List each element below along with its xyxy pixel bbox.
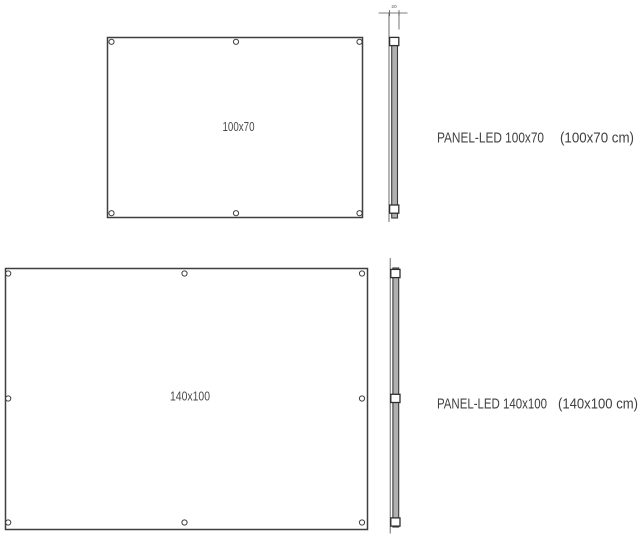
- thickness-dimension: 20: [379, 4, 408, 30]
- panel-140x100-caption-size: (140x100 cm): [558, 396, 638, 413]
- mounting-hole: [109, 39, 114, 44]
- panel-140x100-front-view: 140x100: [6, 269, 368, 530]
- thickness-dimension-label: 20: [391, 4, 397, 10]
- mounting-clip: [390, 205, 399, 213]
- panel-140x100-caption: PANEL-LED 140x100 (140x100 cm): [437, 396, 638, 413]
- panel-100x70-caption-size: (100x70 cm): [560, 130, 634, 147]
- panel-100x70-front-label: 100x70: [223, 120, 255, 134]
- drawing-svg: 100x70 20 PANEL-LED 100x70 (100x70 cm): [0, 0, 642, 538]
- mounting-hole: [359, 271, 364, 276]
- panel-140x100-side-view: [390, 258, 400, 534]
- panel-140x100-caption-name: PANEL-LED 140x100: [437, 396, 547, 413]
- mounting-hole: [233, 211, 238, 216]
- mounting-hole: [6, 396, 11, 401]
- panel-100x70-caption: PANEL-LED 100x70 (100x70 cm): [437, 130, 634, 147]
- mounting-clip: [391, 518, 400, 526]
- mounting-clip: [391, 269, 400, 277]
- mounting-hole: [357, 211, 362, 216]
- panel-100x70-side-view: 20: [379, 4, 408, 222]
- mounting-hole: [233, 39, 238, 44]
- panel-100x70-caption-name: PANEL-LED 100x70: [437, 130, 544, 147]
- mounting-clip: [390, 37, 399, 45]
- panel-140x100-front-label: 140x100: [170, 390, 210, 404]
- mounting-hole: [182, 520, 187, 525]
- mounting-hole: [359, 396, 364, 401]
- technical-drawing-canvas: 100x70 20 PANEL-LED 100x70 (100x70 cm): [0, 0, 642, 538]
- mounting-hole: [6, 271, 11, 276]
- mounting-hole: [182, 271, 187, 276]
- mounting-clip: [391, 394, 400, 402]
- mounting-hole: [6, 520, 11, 525]
- panel-100x70-front-view: 100x70: [108, 38, 363, 218]
- mounting-hole: [357, 39, 362, 44]
- mounting-hole: [109, 211, 114, 216]
- side-profile-bar: [392, 38, 398, 218]
- mounting-hole: [359, 520, 364, 525]
